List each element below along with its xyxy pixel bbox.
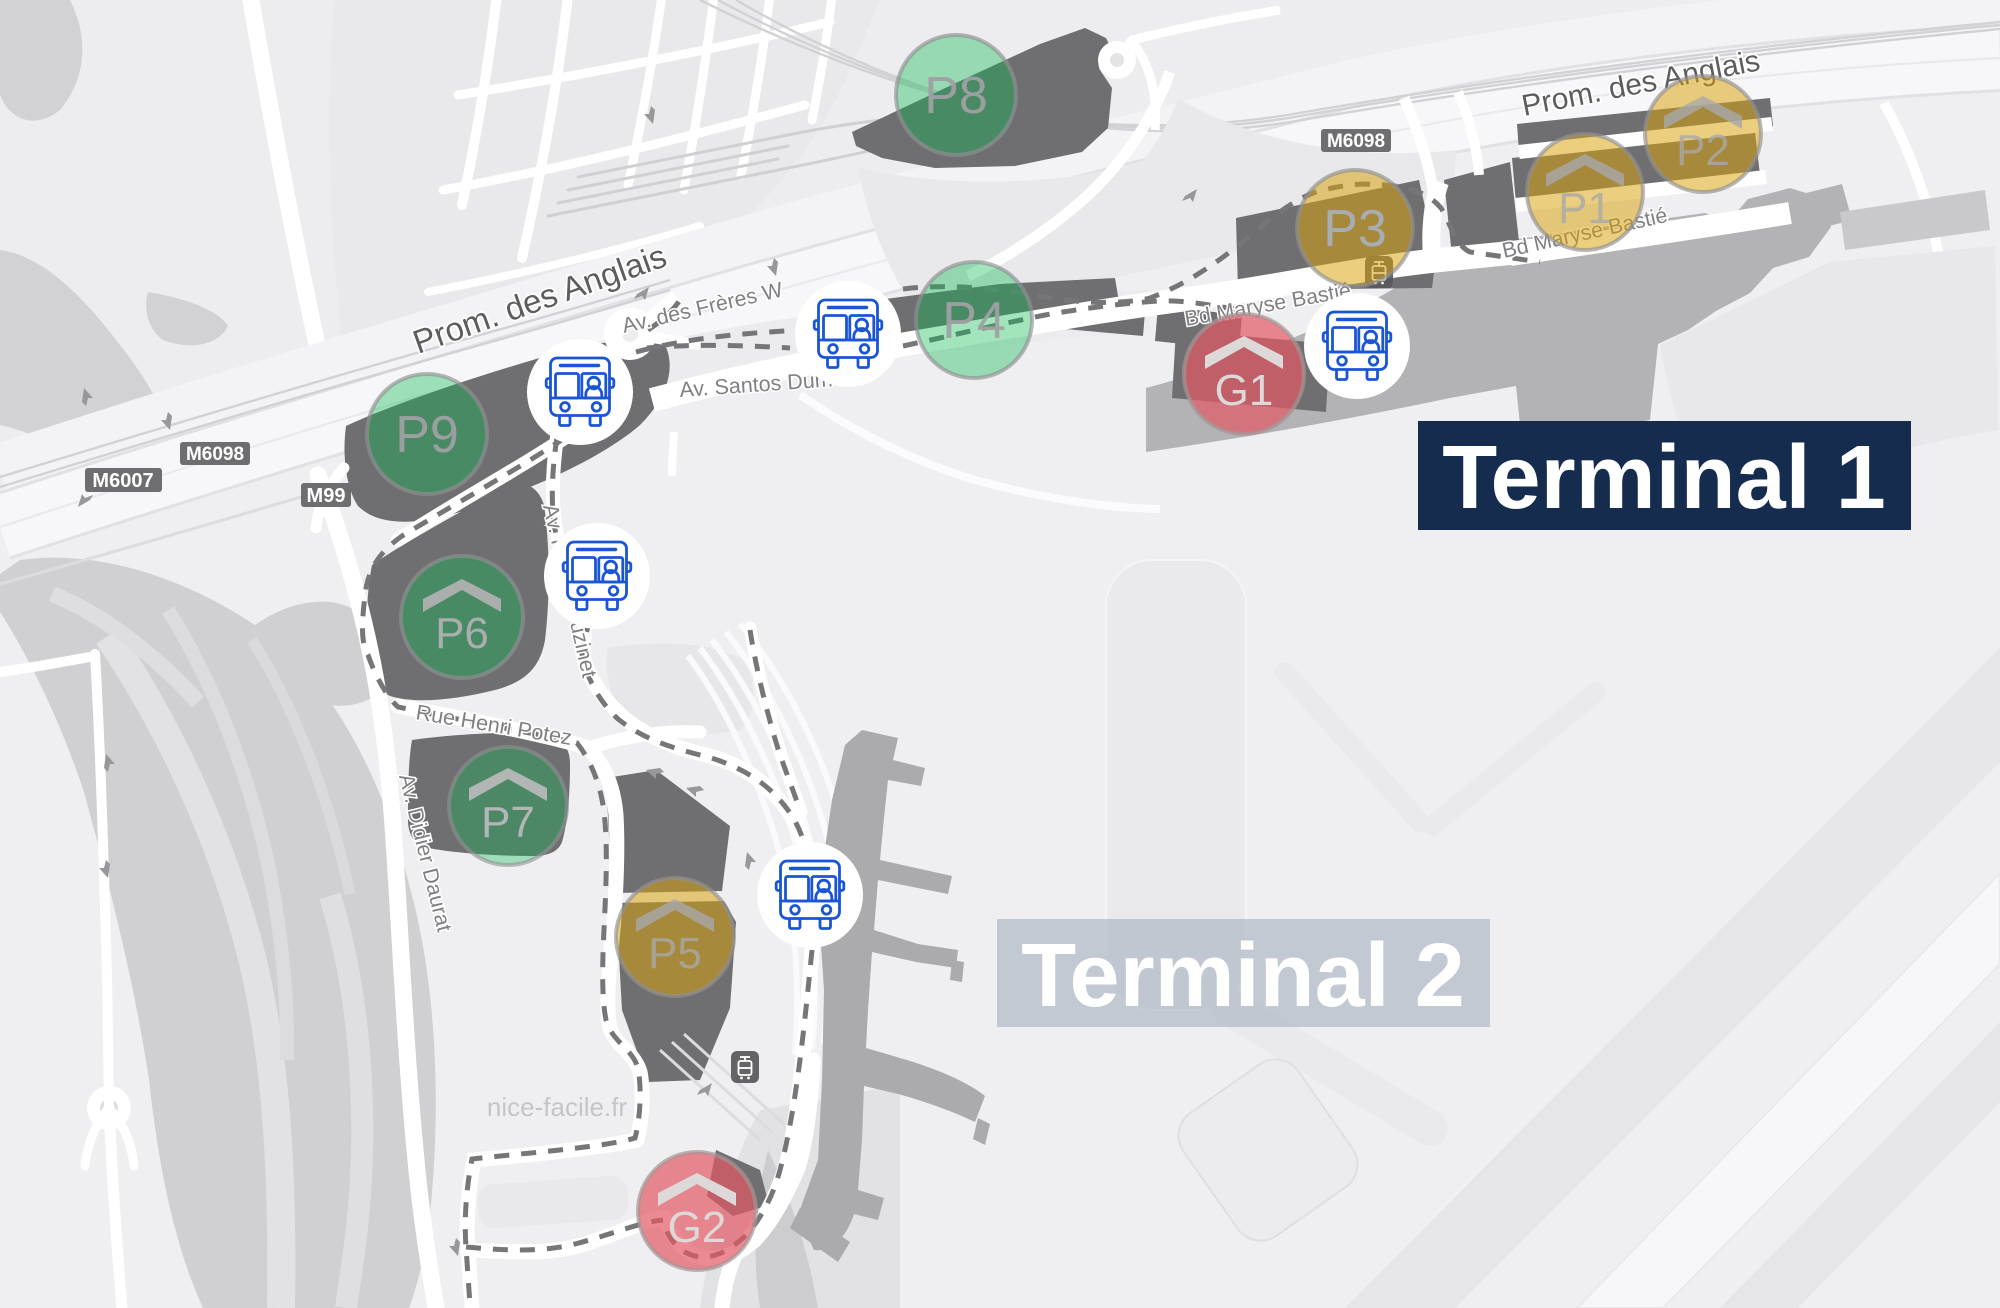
svg-text:P1: P1 [1558,184,1612,233]
svg-text:P5: P5 [648,929,702,978]
svg-text:P8: P8 [924,67,988,125]
svg-text:Terminal 1: Terminal 1 [1442,428,1886,528]
svg-text:M99: M99 [307,485,346,507]
svg-text:P6: P6 [435,609,489,658]
svg-text:M6098: M6098 [1327,131,1385,152]
svg-text:G1: G1 [1215,366,1274,415]
svg-text:P4: P4 [942,292,1006,350]
svg-text:G2: G2 [668,1203,727,1252]
svg-text:P7: P7 [481,798,535,847]
svg-text:P2: P2 [1676,126,1730,175]
svg-text:P9: P9 [395,406,459,464]
svg-text:P3: P3 [1323,200,1387,258]
svg-text:Terminal 2: Terminal 2 [1021,926,1465,1026]
svg-text:M6098: M6098 [186,444,244,465]
svg-text:nice-facile.fr: nice-facile.fr [487,1092,627,1122]
svg-text:M6007: M6007 [92,470,153,492]
